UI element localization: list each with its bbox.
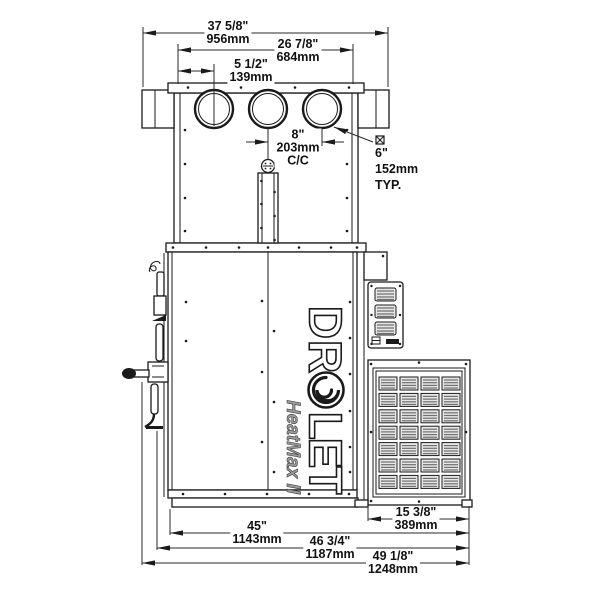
dim-collar-diameter-in: 6" bbox=[375, 145, 418, 161]
base-plate bbox=[172, 498, 358, 507]
dim-body-with-trim-mm: 1187mm bbox=[305, 548, 354, 561]
furnace-body bbox=[168, 252, 387, 507]
round-collars bbox=[195, 90, 341, 128]
blower-grille bbox=[355, 360, 472, 507]
latch-knob bbox=[122, 368, 136, 379]
door-hardware bbox=[122, 253, 168, 497]
control-box-louvers bbox=[375, 288, 396, 335]
dim-overall-depth: 49 1/8" 1248mm bbox=[366, 550, 420, 576]
drawing-canvas: DR LET HeatMax II bbox=[0, 0, 600, 600]
dim-collar-diameter-mm: 152mm bbox=[375, 161, 418, 177]
dim-collar-offset-mm: 139mm bbox=[229, 71, 272, 84]
dim-plenum-width-mm: 684mm bbox=[276, 51, 319, 64]
right-duct-collar bbox=[358, 90, 389, 128]
flame-logo-icon bbox=[309, 373, 344, 408]
door-latch bbox=[122, 362, 168, 382]
furnace-dimension-drawing: DR LET HeatMax II bbox=[0, 0, 600, 600]
dim-overall-depth-mm: 1248mm bbox=[368, 563, 418, 576]
dim-collar-diameter: 6" 152mm TYP. bbox=[373, 135, 420, 193]
logo-text-let: LET bbox=[299, 412, 351, 495]
dim-overall-width-mm: 956mm bbox=[206, 33, 249, 46]
control-box bbox=[368, 282, 403, 348]
diameter-symbol-icon bbox=[375, 135, 385, 145]
dim-overall-width: 37 5/8" 956mm bbox=[204, 20, 251, 46]
rating-label bbox=[386, 339, 399, 344]
dim-grille-width: 15 3/8" 389mm bbox=[392, 506, 439, 532]
dim-body-with-trim: 46 3/4" 1187mm bbox=[303, 535, 356, 561]
supply-plenum bbox=[142, 83, 389, 252]
dim-body-width: 45" 1143mm bbox=[230, 520, 283, 546]
plenum-bottom-flange bbox=[166, 243, 366, 252]
dim-grille-width-mm: 389mm bbox=[394, 519, 437, 532]
dim-collar-spacing: 8" 203mm C/C bbox=[274, 129, 321, 168]
spring-handle-icon bbox=[149, 261, 160, 272]
dim-body-width-mm: 1143mm bbox=[232, 533, 281, 546]
vent-cap-icon bbox=[262, 160, 275, 173]
dim-collar-offset: 5 1/2" 139mm bbox=[227, 58, 274, 84]
left-duct-collar bbox=[142, 90, 174, 128]
dim-collar-diameter-note: TYP. bbox=[375, 177, 418, 193]
logo-model-text: HeatMax II bbox=[282, 400, 303, 495]
plenum-center-brace bbox=[258, 173, 278, 243]
logo-text-dr: DR bbox=[299, 306, 351, 374]
dim-plenum-width: 26 7/8" 684mm bbox=[274, 38, 321, 64]
dim-collar-spacing-note: C/C bbox=[276, 155, 319, 168]
